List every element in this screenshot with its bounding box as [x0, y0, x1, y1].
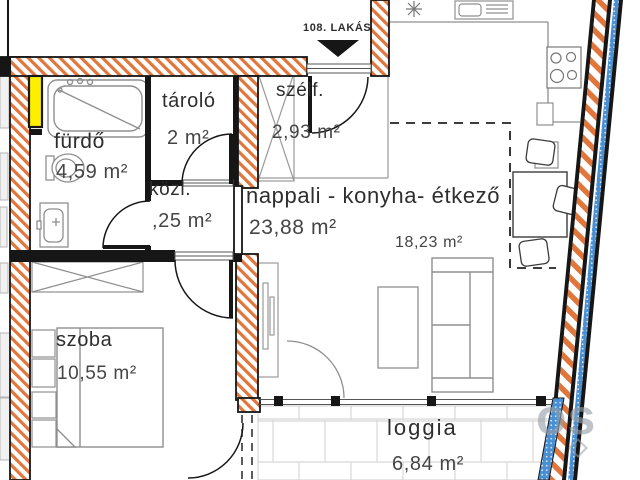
room-area-bathroom: 4,59 m² [56, 162, 128, 182]
room-label-hallway: közl. [149, 180, 191, 199]
kitchen-sink [455, 1, 513, 19]
floor-plan: 107. LAKÁS 108. LAKÁS fürdő 4,59 m² táro… [0, 0, 640, 480]
room-label-bedroom: szoba [56, 330, 112, 350]
tv-cabinet [258, 263, 278, 377]
neighbor-unit-fragments [0, 72, 10, 460]
bathtub [48, 79, 148, 138]
room-label-storage: tároló [162, 91, 216, 111]
loggia-door [287, 341, 344, 398]
hallway-right-wall [234, 186, 242, 254]
coffee-table [378, 287, 418, 368]
room-area-living: 23,88 m² [249, 217, 337, 238]
room-label-living: nappali - konyha- étkező [246, 185, 500, 207]
apartment-label: 108. LAKÁS [303, 23, 371, 34]
nightstands [32, 330, 56, 447]
highlighted-duct [29, 76, 42, 135]
storage-vestibule-wall [238, 76, 258, 188]
room-area-loggia: 6,84 m² [392, 454, 464, 474]
storage-right-wall [233, 76, 238, 186]
stove [547, 47, 581, 88]
corridor-wall-line [7, 0, 9, 57]
bedroom-living-wall [236, 254, 258, 400]
watermark-text: os [536, 392, 596, 442]
bedroom-door [175, 260, 233, 318]
boiler-star-symbol [406, 1, 422, 17]
bathroom-door [103, 201, 150, 249]
washbasin [37, 203, 68, 247]
loggia-glass-wall [258, 396, 553, 406]
loggia-corner-wall [238, 398, 260, 412]
lower-unit-door [188, 423, 243, 478]
entrance-arrow-icon [317, 40, 359, 57]
room-area-vestibule: 2,93 m² [272, 123, 341, 142]
room-label-loggia: loggia [387, 417, 458, 439]
entry-pier-wall [371, 0, 389, 76]
sofa [432, 258, 493, 392]
left-exterior-wall [10, 57, 30, 480]
bedroom-top-wall [10, 250, 150, 262]
room-subarea-living: 18,23 m² [395, 235, 463, 251]
room-area-hallway: ,25 m² [152, 211, 212, 231]
neighbor-apartment-label: 107. LAKÁS [251, 0, 319, 2]
room-label-bathroom: fürdő [54, 131, 105, 152]
bedroom-wardrobe [32, 262, 143, 292]
room-area-bedroom: 10,55 m² [57, 364, 137, 383]
room-area-storage: 2 m² [167, 128, 209, 148]
room-label-vestibule: szélf. [276, 81, 324, 100]
top-wall [0, 57, 307, 76]
